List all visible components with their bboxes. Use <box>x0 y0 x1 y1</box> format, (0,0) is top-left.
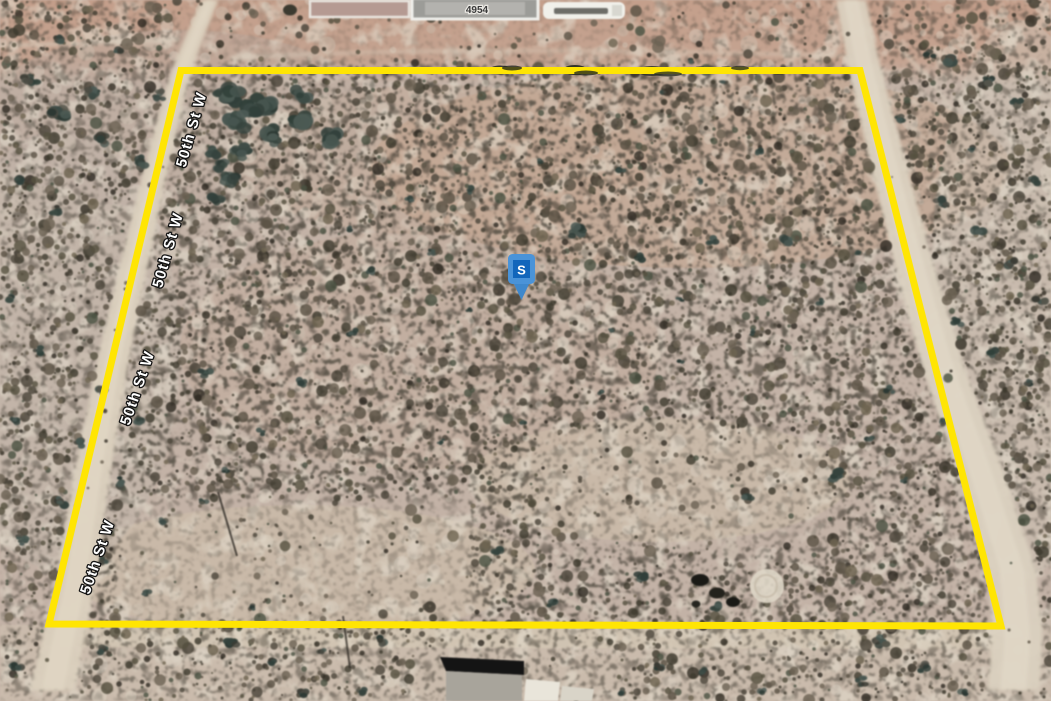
svg-text:2023 Google: 2023 Google <box>556 645 625 659</box>
svg-text:S: S <box>517 263 526 278</box>
svg-text:4954: 4954 <box>466 5 489 16</box>
